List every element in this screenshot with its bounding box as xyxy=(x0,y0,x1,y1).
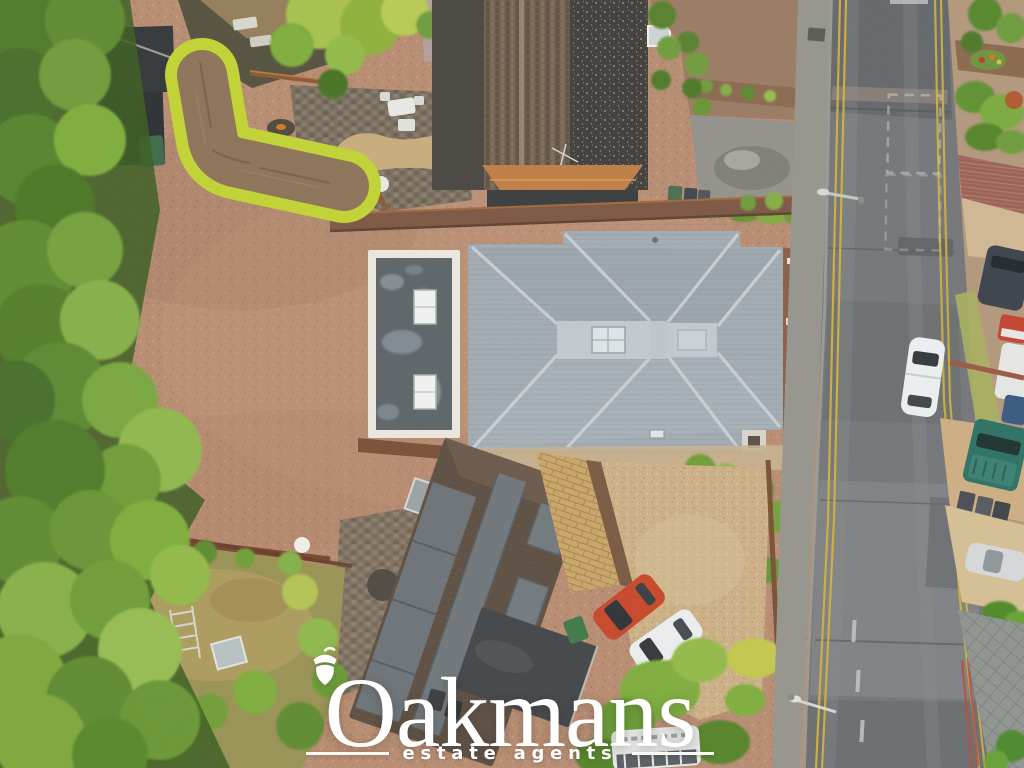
scene-canvas xyxy=(0,0,1024,768)
photo-grain xyxy=(0,0,1024,768)
aerial-photo: O akmans estate agents xyxy=(0,0,1024,768)
